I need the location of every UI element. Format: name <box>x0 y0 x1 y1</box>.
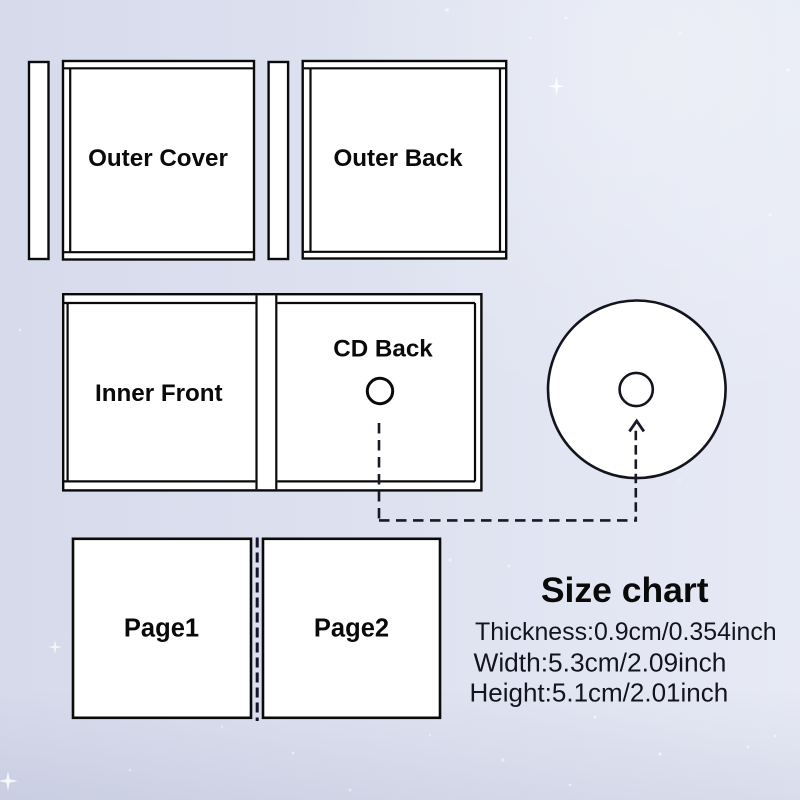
svg-text:Outer Back: Outer Back <box>333 145 463 172</box>
svg-text:Page2: Page2 <box>314 615 389 643</box>
svg-text:Width:5.3cm/2.09inch: Width:5.3cm/2.09inch <box>474 648 727 678</box>
svg-text:Outer Cover: Outer Cover <box>88 145 228 172</box>
svg-text:Page1: Page1 <box>124 615 199 643</box>
svg-text:Size chart: Size chart <box>541 570 709 610</box>
svg-text:Thickness:0.9cm/0.354inch: Thickness:0.9cm/0.354inch <box>475 618 777 646</box>
svg-text:Inner Front: Inner Front <box>95 380 223 407</box>
svg-text:CD Back: CD Back <box>333 336 433 363</box>
svg-text:Height:5.1cm/2.01inch: Height:5.1cm/2.01inch <box>470 678 729 708</box>
